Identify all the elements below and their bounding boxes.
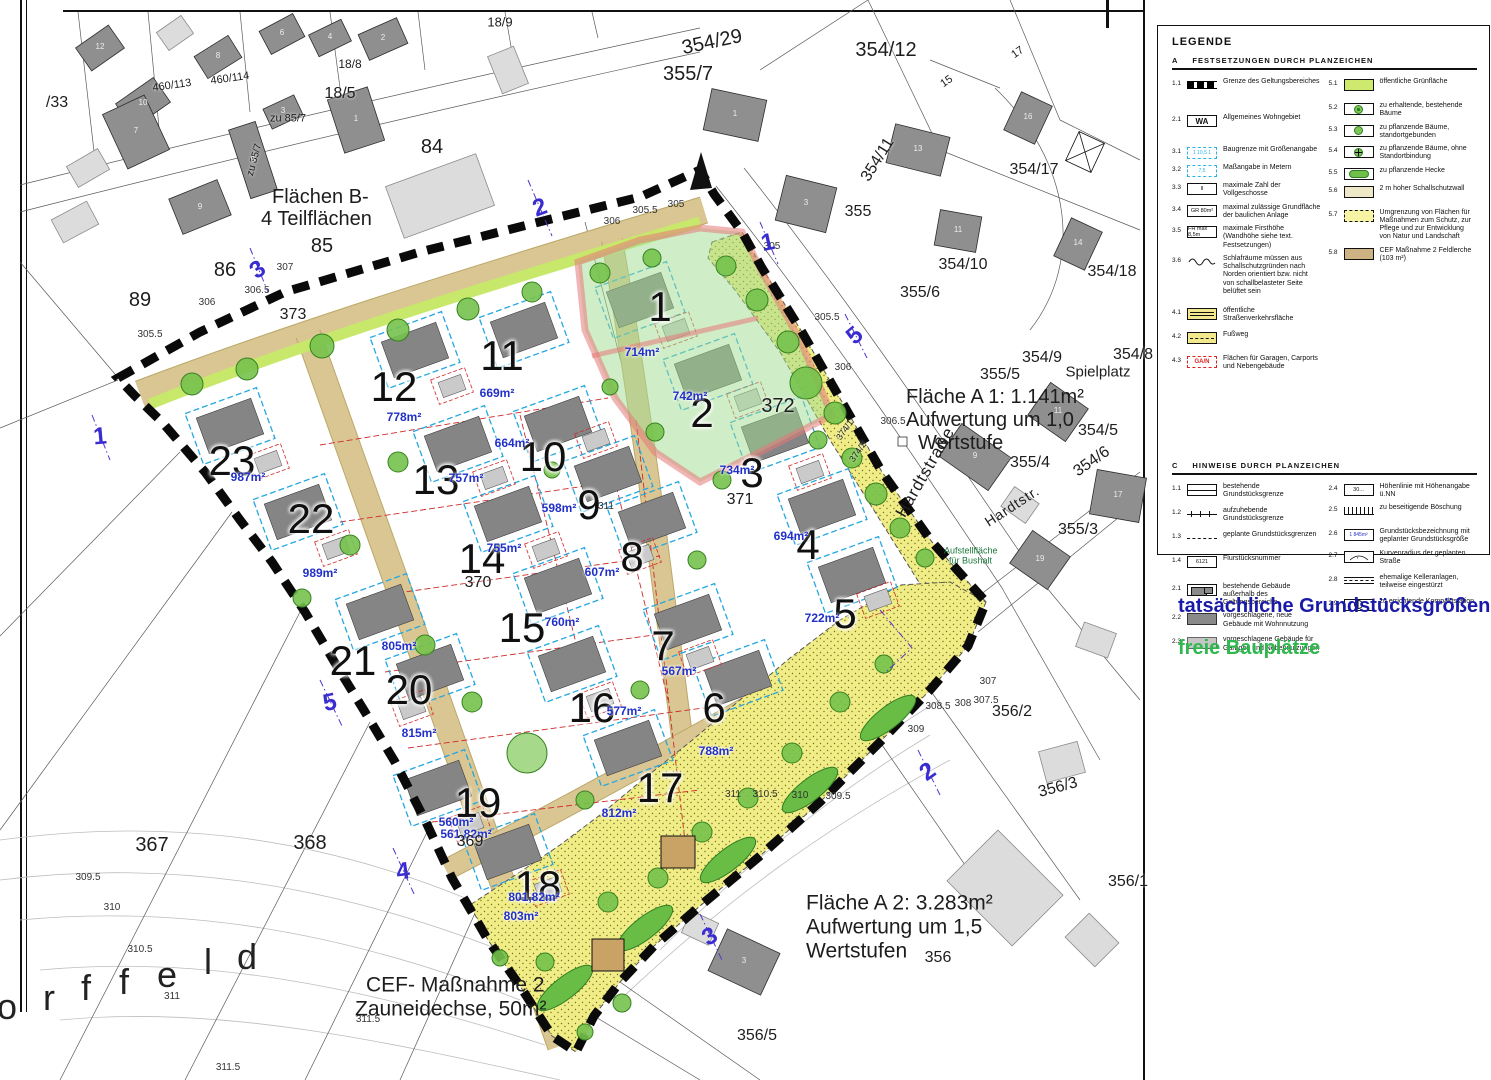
legend-item-number: 3.2 [1172,164,1187,173]
cef-area-icon [1344,248,1374,260]
legend-item-number: 5.5 [1329,167,1344,176]
tree [492,950,508,966]
tree [842,448,862,468]
tree [746,289,768,311]
legend-item: 5.2zu erhaltende, bestehende Bäume [1329,102,1478,119]
legend-item: 5.5zu pflanzende Hecke [1329,167,1478,180]
existing-building [947,830,1063,946]
legend-item-number: 5.8 [1329,247,1344,256]
tree [646,423,664,441]
tree [713,471,731,489]
legend-item-number: 5.3 [1329,124,1344,133]
existing-building [703,89,767,142]
legend-item-number: 5.4 [1329,145,1344,154]
parcel-line [0,380,118,428]
tree [522,282,542,302]
legend-item-label: Flächen für Garagen, Carports und Nebeng… [1223,355,1321,372]
legend-item-number: 3.5 [1172,225,1187,234]
legend-item-label: Kurvenradius der geplanten Straße [1380,550,1478,567]
legend-item: 3.11 10,5 1Baugrenze mit Größenangabe [1172,146,1321,159]
tree [890,518,910,538]
note-free-plots: freie Bauplätze [1178,637,1320,660]
garage-building [586,688,614,711]
legend-item: 5.62 m hoher Schallschutzwall [1329,185,1478,204]
proposed-building [788,479,855,535]
section-line [760,222,778,264]
legend-item-number: 2.5 [1329,504,1344,513]
tree [777,331,799,353]
legend-item-label: maximale Zahl der Vollgeschosse [1223,182,1321,199]
legend-item-label: maximal zulässige Grundfläche der baulic… [1223,204,1321,221]
legend-item: 3.5FH max 8,5mmaximale Firsthöhe (Wandhö… [1172,225,1321,250]
section-line [320,680,342,726]
legend-item: 2.7rKurvenradius der geplanten Straße [1329,550,1478,569]
existing-building [259,14,305,55]
legend-item: 2.5zu beseitigende Böschung [1329,504,1478,523]
legend-item-label: öffentliche Grünfläche [1380,78,1478,86]
existing-building [194,35,242,78]
legend-item-label: Flurstücksnummer [1223,555,1321,563]
green-area-symbol-icon [1344,79,1374,91]
legend-item: 3.4GR 80m²maximal zulässige Grundfläche … [1172,204,1321,221]
legend-col-c-left: 1.1bestehende Grundstücksgrenze1.2aufzuh… [1172,483,1321,661]
legend-item: 3.27,5Maßangabe in Metern [1172,164,1321,177]
tree [613,994,631,1012]
existing-building [309,19,352,56]
parcel-line [240,12,250,112]
parcel-line [505,12,512,52]
section-line [393,848,415,896]
baugrenze-symbol-icon: 1 10,5 1 [1187,147,1217,159]
legend-item: 5.3zu pflanzende Bäume, standortgebunden [1329,124,1478,141]
legend-item-number: 5.1 [1329,78,1344,87]
existing-building [1076,622,1117,658]
legend-item-label: zu pflanzende Hecke [1380,167,1478,175]
parcel-line [592,12,598,38]
existing-building [1028,382,1089,441]
proposed-building [618,492,685,548]
tree [598,892,618,912]
legend-item: 1.46121Flurstücksnummer [1172,555,1321,568]
contour-line [0,873,500,950]
legend-item-label: zu erhaltende, bestehende Bäume [1380,102,1478,119]
proposed-building [490,302,557,358]
tree [340,535,360,555]
existing-building [1039,741,1086,782]
hedge-icon [1344,168,1374,180]
legend-col-a-left: 1.1Grenze des Geltungsbereiches2.1WAAllg… [1172,78,1321,377]
section-line [528,180,552,236]
legend-item-number: 2.6 [1329,528,1344,537]
legend-section-c-title: HINWEISE DURCH PLANZEICHEN [1192,461,1340,470]
curve-radius-icon: r [1344,551,1374,563]
existing-building [51,201,99,243]
legend-item-label: Grundstücksbezeichnung mit geplanter Gru… [1380,528,1478,545]
legend-item: 4.1öffentliche Straßenverkehrsfläche [1172,307,1321,326]
legend-item-number: 5.6 [1329,185,1344,194]
legend-item-label: geplante Grundstücksgrenzen [1223,531,1321,539]
tree [824,402,846,424]
legend-item-number: 1.1 [1172,78,1187,87]
noise-wall-icon [1344,186,1374,198]
tree [643,249,661,267]
box-symbol-icon: 30... [1344,484,1374,496]
legend-item: 2.8ehemalige Kelleranlagen, teilweise ei… [1329,574,1478,593]
parcel-line [78,12,95,160]
cef-square [592,939,624,971]
garage-building [398,696,426,719]
removed-border-icon [1187,508,1217,520]
note-actual-sizes: tatsächliche Grundstücksgrößen [1178,595,1490,618]
contour-line [20,916,520,1000]
legend-section-a-header: A FESTSETZUNGEN DURCH PLANZEICHEN [1172,56,1477,70]
tree [577,1024,593,1040]
street-symbol-icon [1187,308,1217,320]
parcel-line [760,0,868,70]
existing-building [1004,92,1053,144]
parcel-line [0,452,180,636]
box-symbol-icon: 6121 [1187,556,1217,568]
legend-col-a-right: 5.1öffentliche Grünfläche5.2zu erhaltend… [1329,78,1478,377]
garage-building [254,450,282,473]
box-symbol-icon: GR 80m² [1187,205,1217,217]
existing-border-icon [1187,484,1217,496]
parcel-line [620,982,760,1080]
footpath-symbol-icon [1187,332,1217,344]
legend-item-label: zu pflanzende Bäume, standortgebunden [1380,124,1478,141]
legend-item-label: aufzuhebende Grundstücksgrenze [1223,507,1321,524]
legend-section-a: A FESTSETZUNGEN DURCH PLANZEICHEN 1.1Gre… [1172,56,1477,377]
legend-item: 1.1Grenze des Geltungsbereiches [1172,78,1321,97]
wa-symbol-icon: WA [1187,115,1217,127]
existing-building [708,929,780,995]
existing-building [229,121,278,198]
tree [310,334,334,358]
legend-item: 1.3geplante Grundstücksgrenzen [1172,531,1321,550]
parcel-line [1002,588,1100,760]
legend-item-label: Umgrenzung von Flächen für Maß­nahmen zu… [1380,209,1478,242]
legend-item-number: 2.1 [1172,583,1187,592]
legend-item-number: 3.3 [1172,182,1187,191]
planted-tree-icon [1344,125,1374,137]
free-tree-icon [1344,146,1374,158]
existing-building [1001,487,1039,524]
tree [415,635,435,655]
proposed-building [196,398,263,454]
legend-item-number: 4.3 [1172,355,1187,364]
proposed-building [524,558,591,614]
legend-item-number: 3.1 [1172,146,1187,155]
proposed-building [538,636,605,692]
existing-building [358,18,408,61]
legend-col-c-right: 2.430...Höhenlinie mit Höhenangabe ü.NN2… [1329,483,1478,661]
tree [236,358,258,380]
tree [875,655,893,673]
legend-title: LEGENDE [1172,36,1477,48]
contour-line [0,831,470,900]
legend-item: 2.61 845m²Grundstücksbezeichnung mit gep… [1329,528,1478,545]
existing-building [886,124,950,176]
box-symbol-icon: II [1187,183,1217,195]
garage-area-symbol-icon: GA/N [1187,356,1217,368]
legend-item: 2.1WAAllgemeines Wohngebiet [1172,114,1321,127]
legend-item: 2.430...Höhenlinie mit Höhenangabe ü.NN [1329,483,1478,500]
parcel-line [60,612,300,1080]
site-plan-drawing [0,0,1155,1080]
site-plan: 1234567891011121314151617181920212223714… [0,0,1155,1080]
tree [602,379,618,395]
tree [576,791,594,809]
legend-item-label: Fußweg [1223,331,1321,339]
tree [809,431,827,449]
legend-item: 3.6Schlafräume müssen aus Schallschutz­g… [1172,255,1321,296]
tree [293,589,311,607]
legend-item-label: CEF Maßnahme 2 Feldlerche (103 m²) [1380,247,1478,264]
section-line [92,415,110,460]
wave-symbol-icon [1187,256,1217,268]
legend-item-number: 2.8 [1329,574,1344,583]
legend-panel: LEGENDE A FESTSETZUNGEN DURCH PLANZEICHE… [1157,25,1490,555]
legend-item-label: Höhenlinie mit Höhenangabe ü.NN [1380,483,1478,500]
box-symbol-icon: FH max 8,5m [1187,226,1217,238]
section-line [845,314,867,358]
legend-item-number: 4.2 [1172,331,1187,340]
tree [387,319,409,341]
cef-square [661,836,695,868]
existing-building [263,95,303,129]
tree-large [507,733,547,773]
legend-item-number: 2.7 [1329,550,1344,559]
legend-item: 3.3IImaximale Zahl der Vollgeschosse [1172,182,1321,199]
legend-item-label: Baugrenze mit Größenangabe [1223,146,1321,154]
slope-icon [1344,507,1374,515]
tree [790,367,822,399]
legend-item-label: 2 m hoher Schallschutzwall [1380,185,1478,193]
legend-section-c: C HINWEISE DURCH PLANZEICHEN 1.1bestehen… [1172,461,1477,661]
legend-item-number: 1.1 [1172,483,1187,492]
tree [865,483,887,505]
boundary-symbol-icon [1187,81,1217,89]
tree [462,692,482,712]
tree [782,743,802,763]
proposed-building [264,484,331,540]
legend-item-number: 5.7 [1329,209,1344,218]
garage-building [796,460,824,483]
legend-item-number: 4.1 [1172,307,1187,316]
legend-item: 5.8CEF Maßnahme 2 Feldlerche (103 m²) [1329,247,1478,266]
tree [716,256,736,276]
tree [648,868,668,888]
existing-building [327,87,384,153]
parcel-line [0,512,232,830]
existing-building [1089,470,1146,523]
tree [457,298,479,320]
parcel-line [305,822,432,1080]
legend-item: 1.1bestehende Grundstücksgrenze [1172,483,1321,502]
proposed-building [574,446,641,502]
garage-building [480,466,508,489]
wertstufe-box [898,437,907,446]
legend-item-number: 5.2 [1329,102,1344,111]
legend-item-number: 3.4 [1172,204,1187,213]
planned-border-icon [1187,532,1217,544]
existing-building [156,15,193,50]
plan-sheet: 1234567891011121314151617181920212223714… [0,0,1491,1080]
parcel-line [418,12,425,70]
legend-item-label: maximale Firsthöhe (Wandhöhe siehe text.… [1223,225,1321,250]
existing-building [1065,913,1119,967]
existing-building [775,175,837,232]
legend-item: 1.2aufzuhebende Grundstücksgrenze [1172,507,1321,526]
parcel-line [930,60,1000,88]
tree [631,681,649,699]
existing-building [939,423,1011,490]
legend-item-label: Schlafräume müssen aus Schallschutz­grün… [1223,255,1321,296]
legend-item-label: Allgemeines Wohngebiet [1223,114,1321,122]
tree [916,549,934,567]
legend-item: 5.4zu pflanzende Bäume, ohne Standortbin… [1329,145,1478,162]
existing-building [934,210,982,253]
north-arrow-icon [690,152,712,190]
tree [181,373,203,395]
existing-building [385,154,494,239]
protection-area-icon [1344,210,1374,222]
existing-building [66,149,109,188]
tree [738,788,758,808]
contour-line [40,966,545,1045]
tree [544,462,560,478]
legend-item-number: 1.2 [1172,507,1187,516]
legend-item-number: 1.3 [1172,531,1187,540]
legend-section-c-header: C HINWEISE DURCH PLANZEICHEN [1172,461,1477,475]
existing-building [1010,530,1071,589]
parcel-line [594,1016,700,1080]
legend-item-number: 2.4 [1329,483,1344,492]
baugrenze-symbol-icon: 7,5 [1187,165,1217,177]
existing-building [76,25,125,71]
legend-section-a-title: FESTSETZUNGEN DURCH PLANZEICHEN [1192,56,1373,65]
legend-item: 5.7Umgrenzung von Flächen für Maß­nahmen… [1329,209,1478,242]
cellar-icon [1344,577,1374,584]
legend-item: 5.1öffentliche Grünfläche [1329,78,1478,97]
legend-item-label: Grenze des Geltungsbereiches [1223,78,1321,86]
legend-item: 4.3GA/NFlächen für Garagen, Carports und… [1172,355,1321,372]
tree [388,452,408,472]
tree [830,692,850,712]
legend-item-label: Maßangabe in Metern [1223,164,1321,172]
legend-section-a-id: A [1172,56,1178,65]
parcel-line [20,262,120,380]
proposed-building [474,486,541,542]
section-line [250,248,268,292]
garage-building [438,374,466,397]
plot-id-icon: 1 845m² [1344,529,1374,541]
legend-item-label: ehemalige Kelleranlagen, teilweise einge… [1380,574,1478,591]
legend-item-number: 3.6 [1172,255,1187,264]
existing-tree-icon [1344,103,1374,115]
tree [536,953,554,971]
legend-item-label: zu beseitigende Böschung [1380,504,1478,512]
proposed-building [424,416,491,472]
legend-item: 4.2Fußweg [1172,331,1321,350]
existing-building [488,46,529,94]
legend-section-c-id: C [1172,461,1178,470]
existing-building-icon [1187,584,1217,596]
proposed-building [524,396,591,452]
section-line [918,750,940,795]
legend-item-number: 2.1 [1172,114,1187,123]
tree [688,551,706,569]
existing-building [169,180,231,235]
legend-item-label: zu pflanzende Bäume, ohne Standortbindun… [1380,145,1478,162]
legend-item-number: 1.4 [1172,555,1187,564]
legend-item-label: öffentliche Straßenverkehrsfläche [1223,307,1321,324]
existing-building [1054,218,1103,270]
tree [590,263,610,283]
legend-item-label: bestehende Grundstücksgrenze [1223,483,1321,500]
